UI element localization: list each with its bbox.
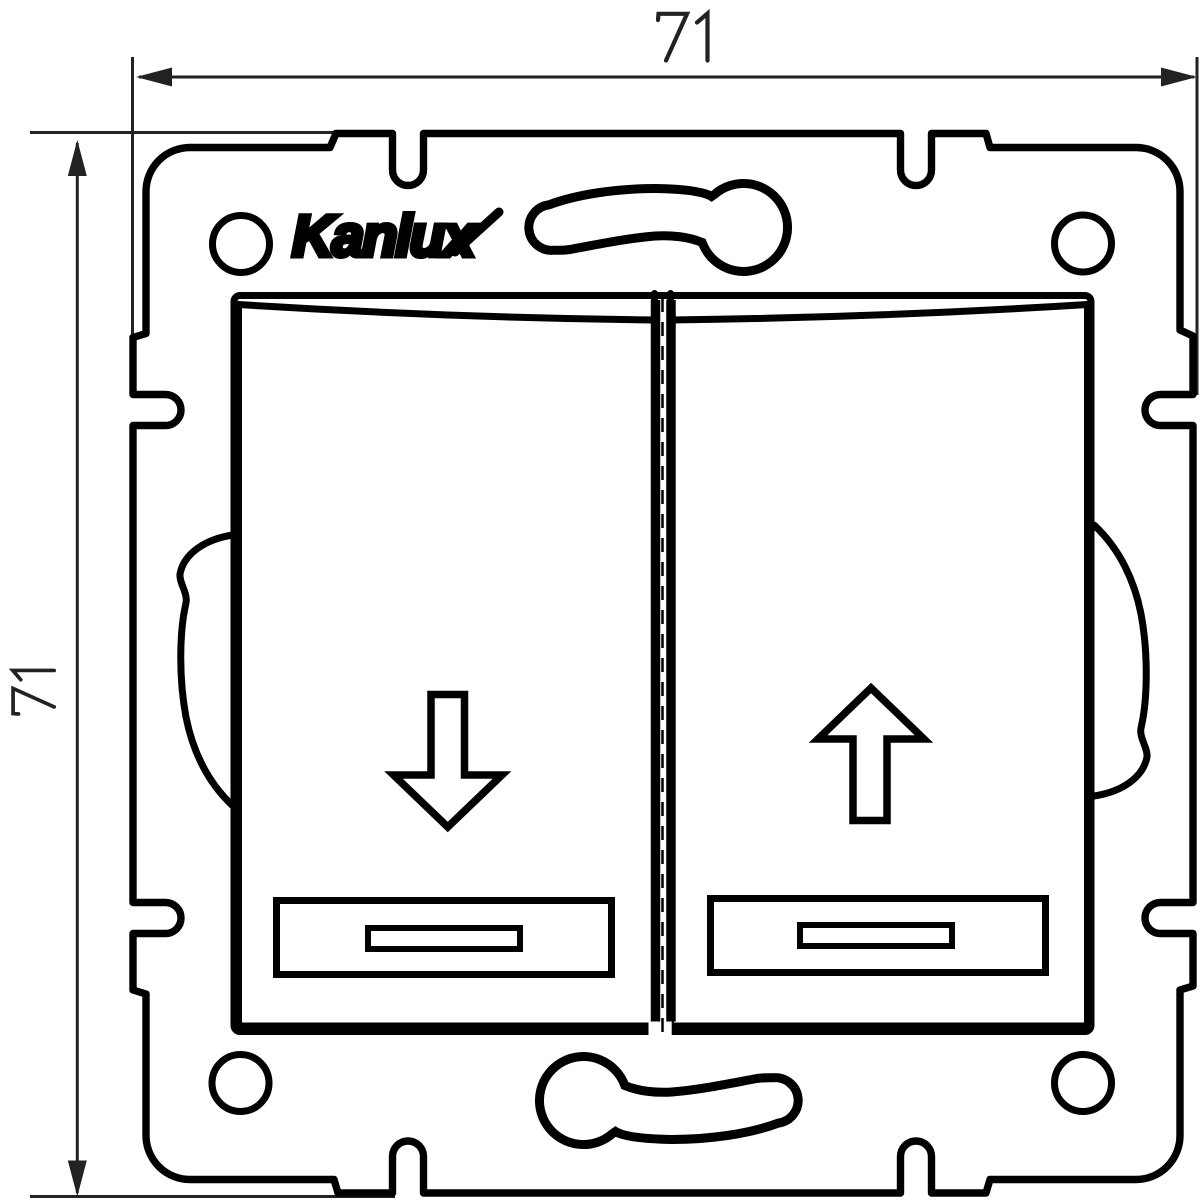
svg-text:Kanlux: Kanlux: [292, 204, 478, 269]
